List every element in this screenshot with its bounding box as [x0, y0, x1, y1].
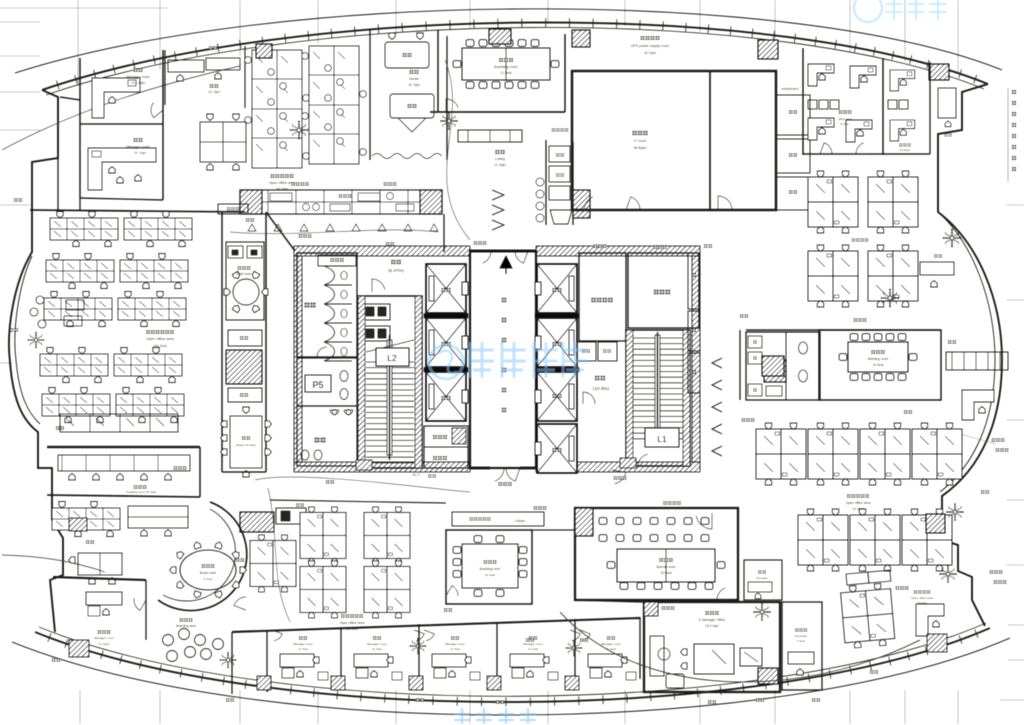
svg-text:16.5sqm: 16.5sqm — [900, 148, 911, 152]
svg-text:Studio: Studio — [409, 77, 419, 81]
svg-text:11 Seat: 11 Seat — [528, 647, 538, 651]
svg-text:15.1 Sqm: 15.1 Sqm — [131, 81, 146, 85]
svg-text:Open office area: Open office area — [269, 181, 296, 185]
svg-text:Treading room 54 Seat: Treading room 54 Seat — [126, 490, 157, 494]
svg-text:office area: office area — [838, 117, 852, 121]
svg-text:16 Sqm: 16 Sqm — [840, 122, 850, 126]
svg-text:Manager room: Manager room — [367, 642, 388, 646]
svg-text:5 Seat: 5 Seat — [797, 639, 805, 643]
svg-text:15 Seat: 15 Seat — [873, 363, 884, 367]
svg-text:10sqm: 10sqm — [515, 519, 525, 523]
svg-text:Meeting room: Meeting room — [868, 357, 889, 361]
svg-text:L1: L1 — [657, 434, 667, 444]
svg-text:8 Seat: 8 Seat — [204, 577, 213, 581]
svg-text:L2: L2 — [387, 353, 397, 363]
svg-text:Manager room: Manager room — [601, 642, 622, 646]
svg-text:11 Seat: 11 Seat — [450, 647, 460, 651]
svg-text:Special room: Special room — [656, 565, 676, 569]
svg-text:Board 10 Seat: Board 10 Seat — [236, 443, 255, 447]
svg-text:Open office area: Open office area — [146, 337, 175, 341]
svg-text:(10.8m): (10.8m) — [593, 386, 610, 392]
svg-text:Manager room: Manager room — [293, 642, 314, 646]
svg-text:Lobby: Lobby — [495, 157, 505, 161]
svg-text:13.1Sqm: 13.1Sqm — [98, 642, 110, 646]
svg-text:13. Sqm: 13. Sqm — [208, 90, 220, 94]
svg-text:21 Seat: 21 Seat — [501, 71, 512, 75]
svg-text:Manager room: Manager room — [126, 75, 149, 79]
svg-text:Manager room: Manager room — [523, 642, 544, 646]
svg-text:6' Manager Office: 6' Manager Office — [699, 618, 726, 622]
svg-text:Open office area: Open office area — [911, 596, 933, 600]
svg-text:30 Seat: 30 Seat — [661, 571, 672, 575]
svg-text:Open office area: Open office area — [339, 621, 364, 625]
svg-text:Boarding room: Boarding room — [494, 65, 518, 69]
svg-text:11 Seat: 11 Seat — [606, 647, 616, 651]
svg-text:15. Sqm: 15. Sqm — [408, 83, 420, 87]
svg-text:21 Sqm: 21 Sqm — [494, 163, 506, 167]
svg-text:P5: P5 — [312, 380, 323, 390]
svg-text:23.5 Sqm: 23.5 Sqm — [705, 624, 719, 628]
svg-text:UPS power supply room: UPS power supply room — [631, 44, 670, 48]
svg-text:Rest room: Rest room — [237, 272, 252, 276]
svg-text:Manager room: Manager room — [126, 145, 149, 149]
svg-text:48.5sqm: 48.5sqm — [633, 146, 646, 150]
svg-text:16.7sqm: 16.7sqm — [644, 51, 657, 55]
svg-text:11 Seat: 11 Seat — [372, 647, 382, 651]
svg-text:Manager room: Manager room — [445, 642, 466, 646]
svg-text:11 Seat: 11 Seat — [298, 647, 308, 651]
svg-text:IT room: IT room — [633, 139, 646, 143]
svg-text:15 Seat: 15 Seat — [485, 573, 496, 577]
svg-text:Open office area: Open office area — [845, 501, 870, 505]
svg-text:Manager room: Manager room — [94, 636, 115, 640]
svg-text:Boarding room: Boarding room — [480, 567, 501, 571]
svg-text:Secretary: Secretary — [756, 576, 769, 580]
svg-text:(6.47m): (6.47m) — [388, 268, 404, 273]
svg-text:refreshment: refreshment — [781, 87, 798, 91]
svg-text:15. Sqm: 15. Sqm — [134, 151, 147, 155]
svg-text:A1.3: A1.3 — [413, 473, 420, 477]
svg-text:Boarding area: Boarding area — [176, 624, 196, 628]
svg-text:Board room: Board room — [200, 571, 217, 575]
svg-text:Secretary: Secretary — [795, 634, 808, 638]
